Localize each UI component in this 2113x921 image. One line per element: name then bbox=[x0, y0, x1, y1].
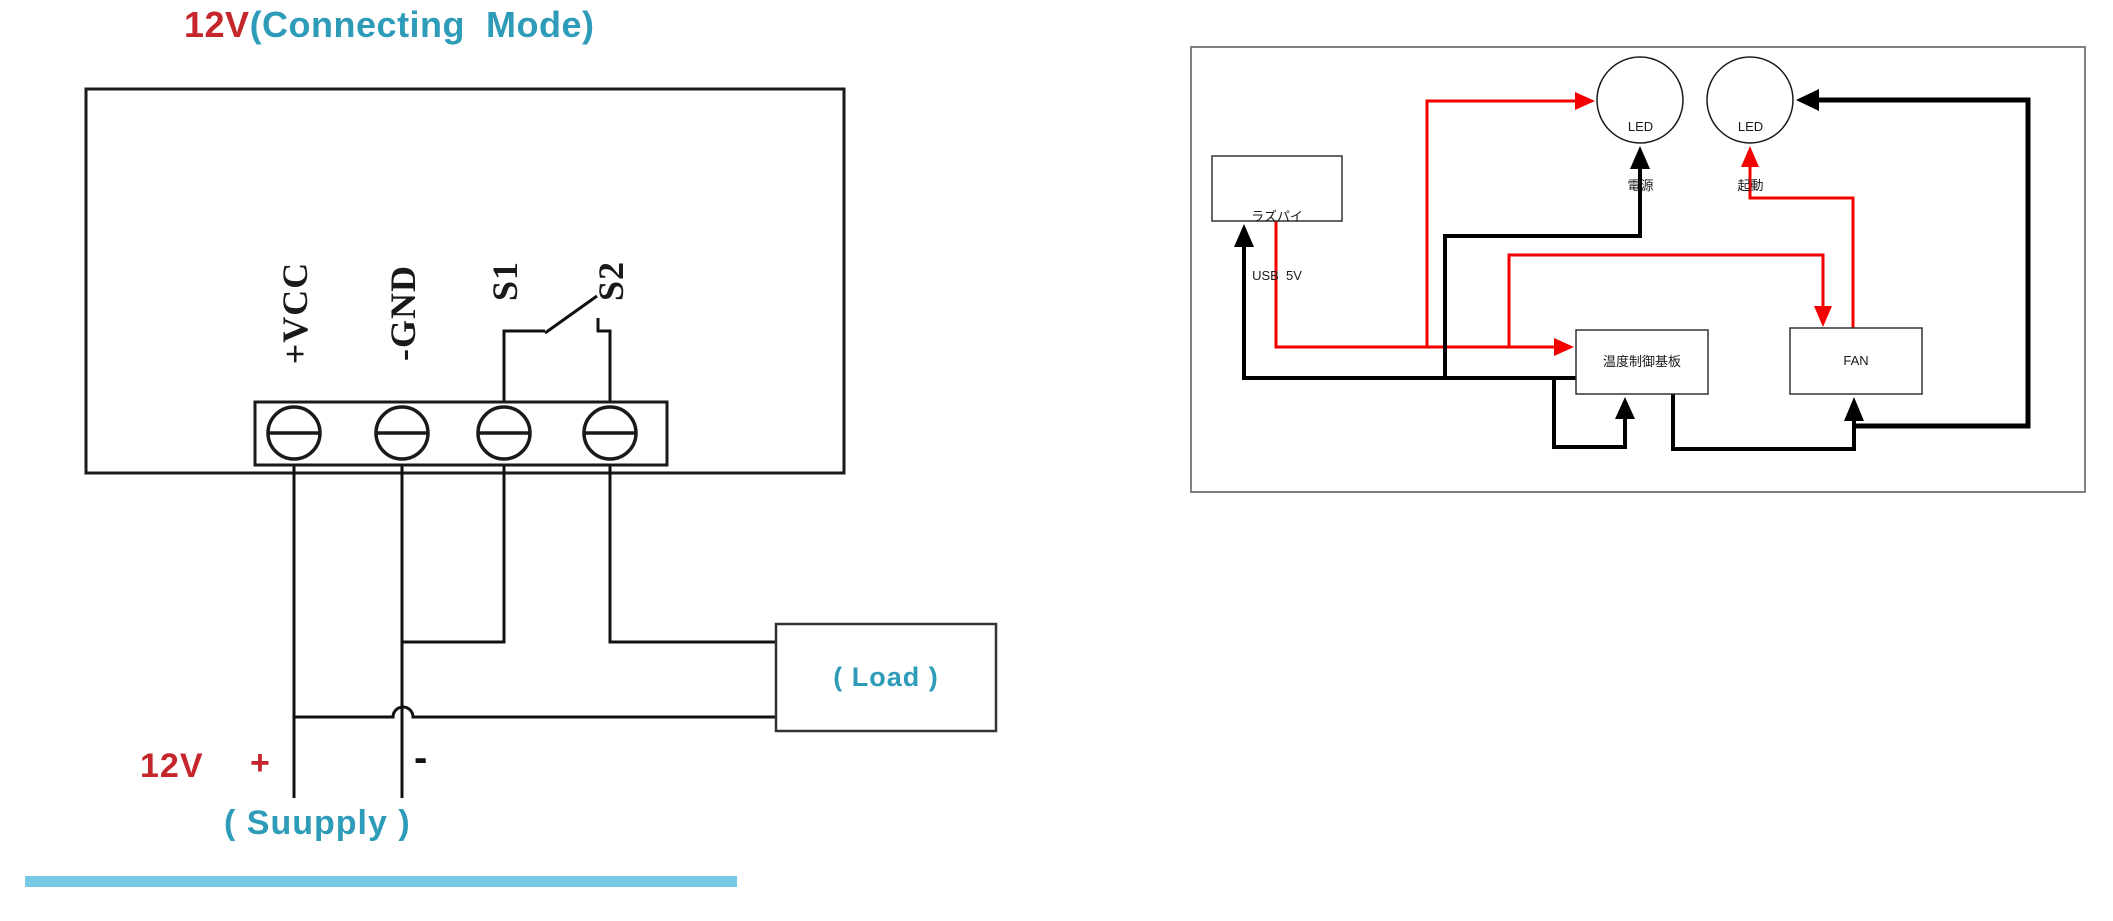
load-box-label: ( Load ) bbox=[776, 624, 996, 731]
arrowhead-black-ledstart bbox=[1796, 89, 1819, 111]
led-start-label: LED 起動 bbox=[1708, 78, 1793, 234]
bottom-divider-bar bbox=[25, 876, 737, 887]
wire-vcc-to-load-with-hop bbox=[294, 707, 776, 717]
led-power-label: LED 電源 bbox=[1598, 78, 1683, 234]
title-mode: (Connecting Mode) bbox=[250, 4, 595, 45]
title-voltage: 12V bbox=[184, 4, 250, 45]
screw-terminal-gnd bbox=[376, 407, 428, 459]
raspi-label: ラズパイ USB 5V bbox=[1212, 168, 1342, 324]
terminal-label-gnd: -GND bbox=[382, 233, 422, 393]
arrowhead-red-tempboard bbox=[1554, 338, 1574, 356]
temp-board-label: 温度制御基板 bbox=[1576, 330, 1708, 394]
terminal-label-vcc: +VCC bbox=[274, 233, 314, 393]
arrowhead-red-ledpower bbox=[1575, 92, 1595, 110]
supply-voltage-label: 12V bbox=[140, 747, 204, 786]
supply-caption: ( Suupply ) bbox=[224, 804, 411, 843]
screw-terminal-s2 bbox=[584, 407, 636, 459]
arrowhead-black-fan bbox=[1844, 397, 1864, 421]
supply-plus-label: + bbox=[250, 744, 270, 783]
screw-terminal-s1 bbox=[478, 407, 530, 459]
wire-s2-up bbox=[597, 331, 610, 406]
wire-black-tempboard-to-fan bbox=[1673, 394, 1854, 449]
wire-red-to-ledpower bbox=[1427, 101, 1576, 347]
wire-s1-to-gnd bbox=[403, 459, 504, 642]
arrowhead-red-fan bbox=[1814, 306, 1832, 327]
supply-minus-label: - bbox=[414, 736, 427, 781]
terminal-label-s1: S1 bbox=[484, 241, 524, 321]
wire-s1-up bbox=[504, 331, 545, 406]
wiring-svg bbox=[0, 0, 2113, 921]
left-diagram-title: 12V(Connecting Mode) bbox=[184, 4, 595, 46]
terminal-label-s2: S2 bbox=[590, 241, 630, 321]
wiring-diagrams-page: 12V(Connecting Mode) +VCC -GND S1 S2 ( L… bbox=[0, 0, 2113, 921]
arrowhead-black-tempboard-bottom bbox=[1615, 397, 1635, 419]
screw-terminal-vcc bbox=[268, 407, 320, 459]
wire-s2-to-load bbox=[610, 459, 776, 642]
fan-label: FAN bbox=[1790, 328, 1922, 394]
